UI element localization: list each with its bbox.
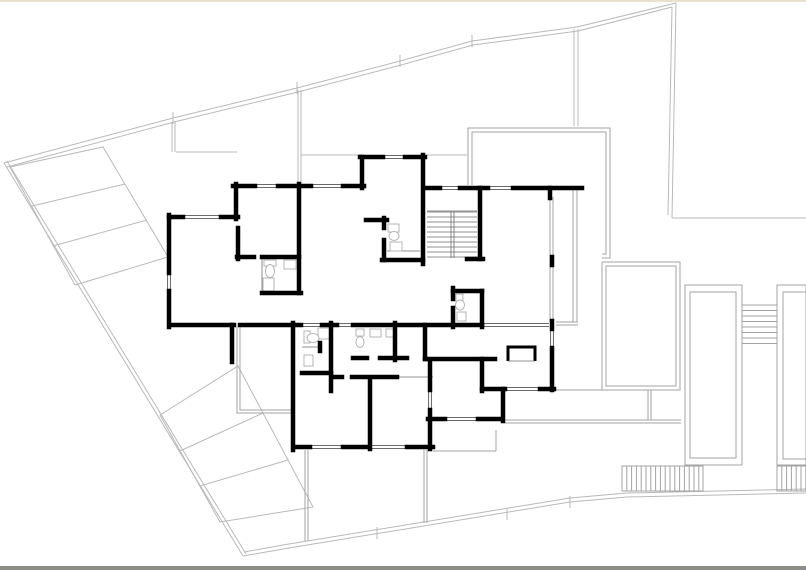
scan-edge-bottom <box>0 566 806 570</box>
floor-plan-drawing <box>0 0 806 570</box>
floor-plan <box>0 0 806 570</box>
scan-edge-top <box>0 0 806 2</box>
